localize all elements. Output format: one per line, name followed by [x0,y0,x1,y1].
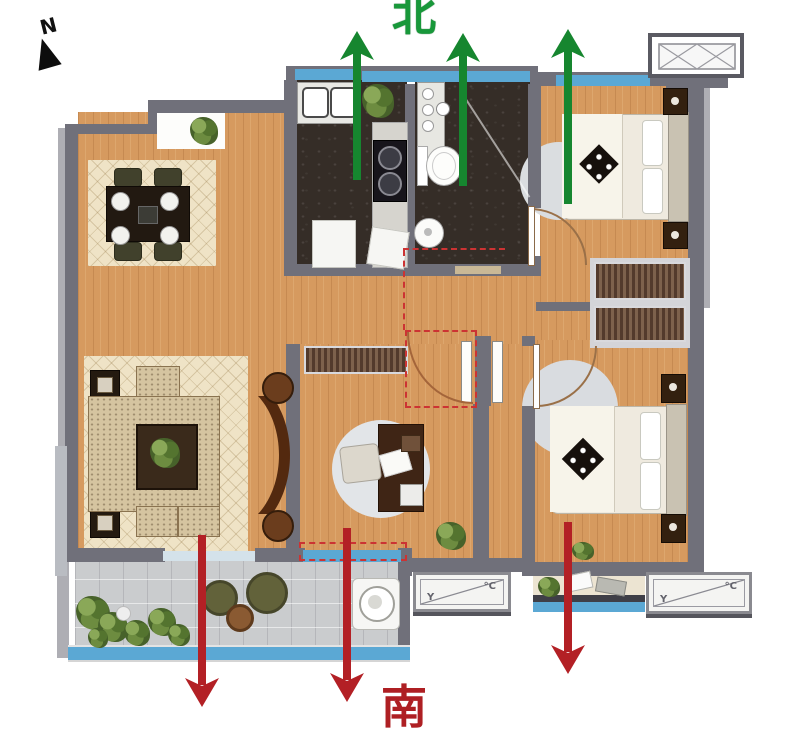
toiletry-icon [422,88,434,100]
sofa-seat-bottom [136,506,178,537]
bedroom1-door-leaf [528,206,535,266]
annotation-line-left [403,250,405,330]
wall-study-right [473,404,489,560]
bedroom1-wardrobe [594,262,686,300]
niche-plant-icon [190,117,218,145]
pebble-icon [116,606,131,621]
pillow-icon [642,120,663,166]
knob-icon [671,97,679,105]
south-arrow-2 [329,528,365,707]
ac-unit-box-top [648,33,744,78]
wall-bath-bedroom1 [528,84,541,208]
ac-platform-right-frame: Y °C [653,579,745,607]
bathroom-threshold [455,266,501,274]
bed1-headboard [668,112,689,222]
south-label: 南 [381,684,427,729]
kitchen-table [312,220,356,268]
desk-monitor [400,484,423,506]
ac-platform-left: Y °C [413,572,511,612]
toiletry-icon [422,120,434,132]
side-table-top [97,377,113,393]
annotation-line-top [403,248,505,250]
ac-glyph-left: Y [660,594,667,605]
toiletry-icon [422,104,434,116]
wall-bedroom2-left-b [522,406,535,566]
window-left-side [55,446,67,576]
burner-icon [378,172,402,196]
plate-icon [160,226,179,245]
balcony-plant-icon [88,628,108,648]
ac-glyph-right: °C [725,581,737,592]
wall-step-horizontal [65,124,157,134]
bed2-headboard [666,404,687,516]
tv-console [256,396,290,518]
bedroom2-wardrobe [594,306,686,342]
study-chair [339,443,382,484]
nightstand [663,88,688,115]
ac-glyph-left: Y [427,592,434,603]
pillow-icon [642,168,663,214]
study-door-leaf-east [492,341,503,403]
south-arrow-3 [550,522,586,679]
sofa-seat-top [136,366,180,398]
corridor-plant-icon [436,522,466,550]
sofa-seat-bottom [178,506,220,537]
south-arrow-1 [184,535,220,712]
wall-right-upper [688,84,704,310]
bath-sink-drain [424,228,432,236]
wall-top-dining [148,100,296,113]
knob-icon [669,523,677,531]
study-wardrobe [304,346,408,374]
ac-platform-right: Y °C [646,572,752,614]
pillow-icon [640,412,661,460]
wall-study-door [475,336,491,406]
planter-icon [246,572,288,614]
ac-platform-left-frame: Y °C [420,579,504,605]
side-table-top [97,515,113,531]
floor-plan-image: N 北 南 [0,0,810,729]
washer-drum-center [368,595,382,609]
ac-box-cross-icon [658,43,736,70]
plate-icon [160,192,179,211]
knob-icon [669,383,677,391]
north-label: 北 [392,0,436,38]
tv-speaker-icon [262,510,294,542]
plate-icon [111,192,130,211]
compass-arrow-icon [30,35,61,70]
dining-chair [114,168,142,187]
coffee-table-plant-icon [150,438,180,468]
wall-living-bottom-1 [65,548,165,562]
north-arrow-2 [445,32,481,192]
wall-dining-kitchen [284,80,297,272]
bedroom2-door-leaf [533,344,540,409]
nightstand [663,222,688,249]
ac-glyph-right: °C [484,581,496,592]
wall-right-trim [704,88,710,308]
wall-living-bottom-2 [255,548,305,562]
pillow-icon [640,462,661,510]
balcony-plant-icon [124,620,150,646]
tv-speaker-icon [262,372,294,404]
sink-basin-icon [302,87,329,118]
north-arrow-3 [550,28,586,210]
knob-icon [671,231,679,239]
north-arrow-1 [339,30,375,186]
wall-right-lower [688,310,704,576]
nightstand [661,514,686,543]
plate-icon [111,226,130,245]
table-centerpiece [138,206,158,224]
wall-corridor-bottom [408,558,534,572]
desk-box [401,435,421,452]
side-table [90,508,120,538]
nightstand [661,374,686,403]
planter-icon [226,604,254,632]
dining-chair [154,168,182,187]
burner-icon [378,146,402,170]
